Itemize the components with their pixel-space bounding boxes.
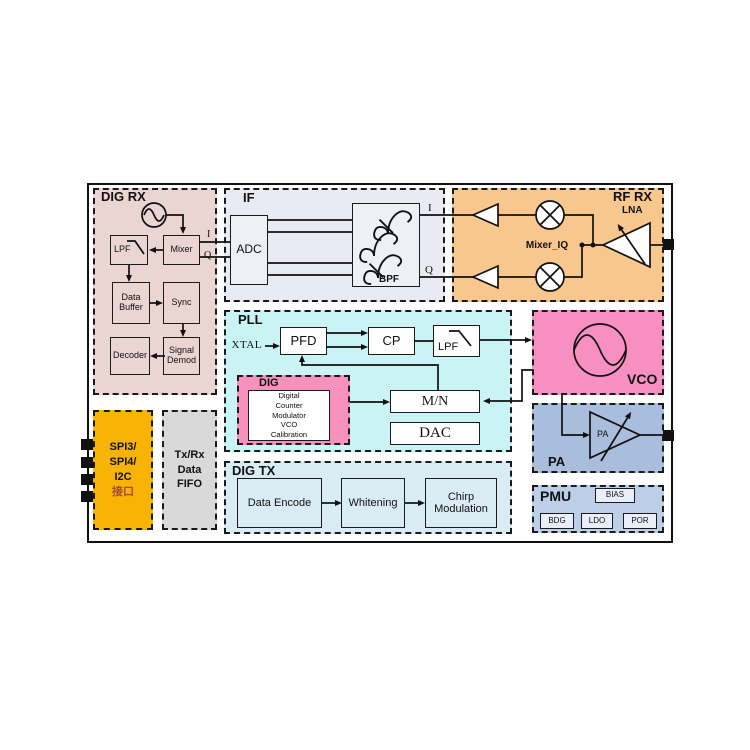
data-encode-box: Data Encode <box>237 478 322 528</box>
dig-rx-i-label: I <box>207 230 210 240</box>
adc-label: ADC <box>236 243 261 256</box>
spi-line-2: SPI4/ <box>110 455 137 470</box>
por-label: POR <box>631 517 648 526</box>
bias-box: BIAS <box>595 488 635 503</box>
pll-title: PLL <box>238 313 263 326</box>
bdg-box: BDG <box>540 513 574 529</box>
if-title: IF <box>243 191 255 204</box>
mn-label: M/N <box>422 394 448 409</box>
mixer-label: Mixer <box>171 245 193 255</box>
rf-rx-title: RF RX <box>613 190 652 203</box>
xtal-label: XTAL <box>226 340 262 351</box>
mixer-iq-label: Mixer_IQ <box>517 241 577 251</box>
por-box: POR <box>623 513 657 529</box>
data-buffer-box: Data Buffer <box>112 282 150 324</box>
lna-label: LNA <box>622 206 643 216</box>
ldo-box: LDO <box>581 513 613 529</box>
pfd-box: PFD <box>280 327 327 355</box>
dig-line-counter: Counter <box>275 401 302 411</box>
data-encode-label: Data Encode <box>248 497 312 509</box>
spi-interface-text: SPI3/ SPI4/ I2C 接口 <box>93 410 153 530</box>
dig-line-digital: Digital <box>278 391 299 401</box>
fifo-line-2: Data <box>178 463 202 478</box>
if-i-label: I <box>428 203 432 214</box>
mixer-box: Mixer <box>163 235 200 265</box>
pmu-title: PMU <box>540 489 571 503</box>
whitening-box: Whitening <box>341 478 405 528</box>
pa-title: PA <box>548 455 565 468</box>
cp-box: CP <box>368 327 415 355</box>
vco-title: VCO <box>627 372 657 386</box>
spi-line-3: I2C <box>114 470 131 485</box>
dac-label: DAC <box>419 425 451 442</box>
fifo-line-3: FIFO <box>177 477 202 492</box>
fifo-text: Tx/Rx Data FIFO <box>162 410 217 530</box>
pa-amp-label: PA <box>597 430 608 439</box>
adc-box: ADC <box>230 215 268 285</box>
spi-line-cn: 接口 <box>112 485 134 500</box>
dig-line-calibration: Calibration <box>271 430 307 440</box>
spi-line-1: SPI3/ <box>110 440 137 455</box>
chirp-modulation-label: Chirp Modulation <box>426 491 496 515</box>
bdg-label: BDG <box>548 517 565 526</box>
dig-calibration-box: Digital Counter Modulator VCO Calibratio… <box>248 390 330 441</box>
whitening-label: Whitening <box>349 497 398 509</box>
sync-box: Sync <box>163 282 200 324</box>
pll-lpf-box: LPF <box>433 325 480 357</box>
signal-demod-box: Signal Demod <box>163 337 200 375</box>
pll-dig-title: DIG <box>259 378 279 389</box>
bpf-label: BPF <box>379 275 399 285</box>
pll-lpf-label: LPF <box>438 341 458 353</box>
if-q-label: Q <box>425 265 433 276</box>
cp-label: CP <box>382 334 400 348</box>
dac-box: DAC <box>390 422 480 445</box>
decoder-box: Decoder <box>110 337 150 375</box>
lpf-label: LPF <box>114 245 131 255</box>
dig-line-vco: VCO <box>281 420 297 430</box>
pfd-label: PFD <box>291 334 317 348</box>
sync-label: Sync <box>171 298 191 308</box>
ldo-label: LDO <box>589 517 605 526</box>
data-buffer-label: Data Buffer <box>113 293 149 313</box>
fifo-line-1: Tx/Rx <box>175 448 205 463</box>
bias-label: BIAS <box>606 491 624 500</box>
decoder-label: Decoder <box>113 351 147 361</box>
transceiver-block-diagram: DIG RX IF RF RX PLL DIG VCO PA PMU DIG T… <box>0 0 750 750</box>
dig-tx-title: DIG TX <box>232 464 275 477</box>
chirp-modulation-box: Chirp Modulation <box>425 478 497 528</box>
dig-rx-q-label: Q <box>204 251 211 261</box>
dig-rx-title: DIG RX <box>101 190 146 203</box>
lpf-box: LPF <box>110 235 148 265</box>
signal-demod-label: Signal Demod <box>164 346 199 366</box>
mn-box: M/N <box>390 390 480 413</box>
dig-line-modulator: Modulator <box>272 411 306 421</box>
